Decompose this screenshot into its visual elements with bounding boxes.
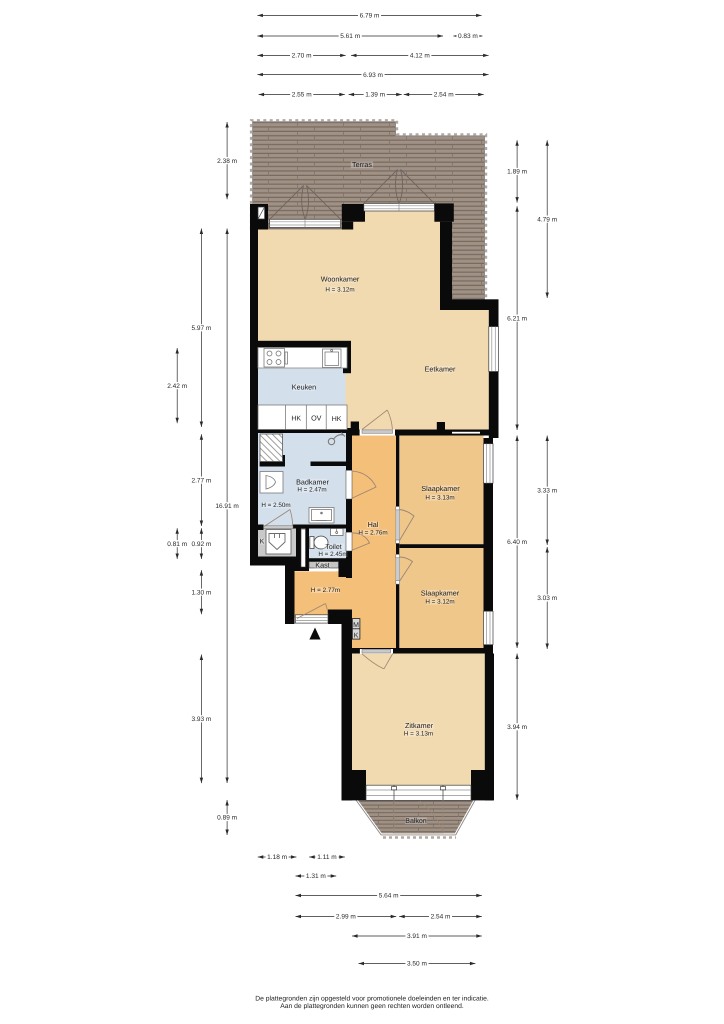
svg-text:HK: HK — [332, 416, 342, 423]
svg-text:5.61 m: 5.61 m — [340, 33, 360, 40]
svg-text:Slaapkamer: Slaapkamer — [421, 589, 460, 598]
svg-text:6.21 m: 6.21 m — [507, 315, 527, 322]
svg-text:Zitkamer: Zitkamer — [405, 721, 434, 730]
svg-text:1.11 m: 1.11 m — [317, 854, 336, 861]
svg-text:K: K — [260, 539, 265, 546]
svg-text:H = 3.13m: H = 3.13m — [425, 495, 454, 502]
svg-text:Terras: Terras — [352, 160, 372, 169]
svg-text:Woonkamer: Woonkamer — [321, 275, 360, 284]
svg-text:H = 3.12m: H = 3.12m — [425, 599, 454, 606]
svg-text:De plattegronden zijn opgestel: De plattegronden zijn opgesteld voor pro… — [255, 996, 489, 1003]
svg-text:H = 2.47m: H = 2.47m — [297, 487, 326, 494]
svg-text:2.38 m: 2.38 m — [217, 158, 237, 165]
svg-text:Badkamer: Badkamer — [296, 478, 329, 487]
svg-text:2.54 m: 2.54 m — [431, 914, 451, 921]
svg-text:2.42 m: 2.42 m — [167, 383, 187, 390]
svg-text:1.31 m: 1.31 m — [306, 873, 326, 880]
svg-text:2.70 m: 2.70 m — [292, 53, 312, 60]
svg-text:H = 2.45m: H = 2.45m — [318, 551, 347, 558]
svg-text:0.83 m: 0.83 m — [458, 33, 478, 40]
svg-text:3.93 m: 3.93 m — [191, 716, 211, 723]
svg-text:1.89 m: 1.89 m — [507, 169, 527, 176]
svg-text:Slaapkamer: Slaapkamer — [421, 484, 460, 493]
svg-text:Toilet: Toilet — [325, 543, 341, 551]
svg-text:3.91 m: 3.91 m — [407, 933, 427, 940]
svg-text:6.40 m: 6.40 m — [507, 539, 527, 546]
svg-text:3.03 m: 3.03 m — [537, 595, 557, 602]
svg-text:Balkon: Balkon — [405, 817, 427, 825]
svg-text:3.50 m: 3.50 m — [407, 961, 427, 968]
svg-text:H = 2.77m: H = 2.77m — [311, 587, 340, 594]
svg-text:5.97 m: 5.97 m — [191, 325, 211, 332]
svg-text:1.39 m: 1.39 m — [365, 92, 385, 99]
svg-text:M: M — [353, 622, 359, 629]
svg-text:0.81 m: 0.81 m — [167, 541, 187, 548]
svg-text:0.92 m: 0.92 m — [191, 541, 211, 548]
svg-text:H = 3.12m: H = 3.12m — [325, 287, 354, 294]
svg-text:H = 2.76m: H = 2.76m — [358, 530, 387, 537]
svg-text:OV: OV — [311, 414, 322, 423]
svg-text:2.55 m: 2.55 m — [292, 92, 312, 99]
svg-text:6.93 m: 6.93 m — [363, 72, 383, 79]
svg-text:4.79 m: 4.79 m — [537, 216, 557, 223]
svg-text:HK: HK — [291, 416, 301, 423]
svg-text:3.94 m: 3.94 m — [507, 724, 527, 731]
svg-text:2.99 m: 2.99 m — [336, 914, 356, 921]
svg-text:Kast: Kast — [315, 561, 329, 570]
svg-text:4.12 m: 4.12 m — [410, 53, 430, 60]
svg-text:1.30 m: 1.30 m — [191, 589, 211, 596]
svg-text:16.91 m: 16.91 m — [215, 503, 239, 510]
svg-text:Hal: Hal — [368, 520, 379, 529]
svg-text:Aan de plattegronden kunnen ge: Aan de plattegronden kunnen geen rechten… — [280, 1003, 464, 1010]
svg-text:5.64 m: 5.64 m — [379, 893, 399, 900]
svg-text:2.54 m: 2.54 m — [434, 92, 454, 99]
svg-text:6.79 m: 6.79 m — [360, 13, 380, 20]
svg-text:Keuken: Keuken — [292, 383, 316, 392]
svg-text:H = 3.13m: H = 3.13m — [404, 731, 433, 738]
svg-text:1.18 m: 1.18 m — [267, 854, 287, 861]
svg-text:H = 2.50m: H = 2.50m — [261, 502, 290, 509]
svg-text:3.33 m: 3.33 m — [537, 487, 557, 494]
svg-text:K: K — [354, 632, 359, 639]
svg-text:0.89 m: 0.89 m — [217, 815, 237, 822]
svg-text:2.77 m: 2.77 m — [191, 477, 211, 484]
svg-text:Eetkamer: Eetkamer — [425, 365, 456, 374]
